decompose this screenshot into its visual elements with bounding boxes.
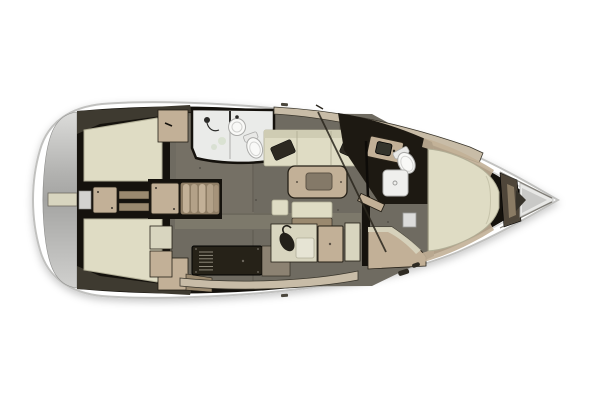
corridor-rail	[119, 203, 149, 211]
vanity-sink	[375, 141, 392, 156]
stool-cushion	[272, 200, 288, 215]
galley-cabinet	[150, 226, 172, 249]
floor-plan-svg	[0, 0, 600, 400]
shower-pan	[383, 170, 408, 196]
hook-fitting	[316, 105, 323, 109]
bench-cushion	[292, 202, 332, 218]
drain	[211, 144, 217, 150]
cleat	[281, 294, 288, 297]
companionway-steps	[180, 182, 220, 215]
corridor-rail	[119, 191, 149, 199]
drain	[218, 137, 226, 145]
galley-cabinet	[150, 251, 172, 277]
galley-sink	[271, 224, 317, 262]
yacht-floor-plan	[0, 0, 600, 400]
cabin-locker	[158, 110, 188, 142]
counter-end	[345, 223, 360, 261]
seat	[403, 213, 416, 227]
transom-walkthrough	[48, 193, 77, 206]
table-inset	[306, 173, 332, 190]
corridor-hatch	[79, 191, 91, 209]
stove	[192, 246, 262, 275]
salon-table	[288, 166, 347, 198]
cleat	[281, 103, 288, 106]
corridor-box	[93, 187, 117, 213]
